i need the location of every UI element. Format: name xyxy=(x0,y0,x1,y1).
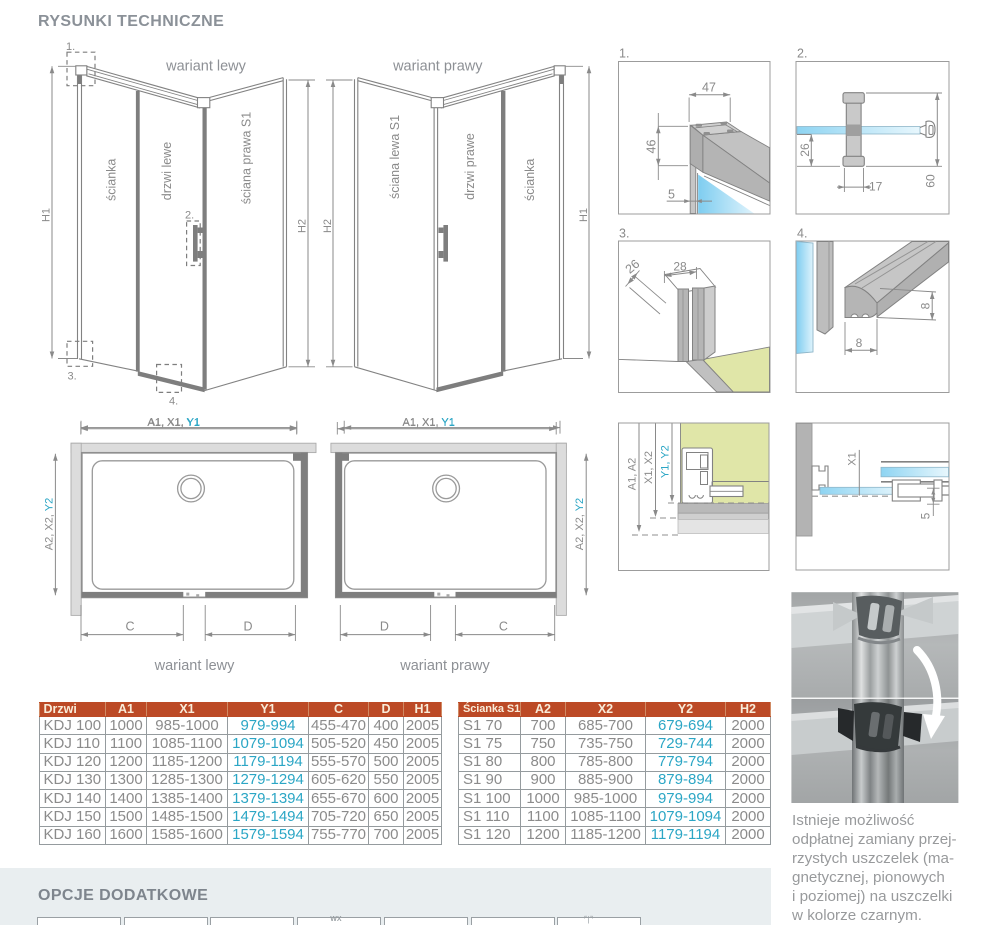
svg-text:2.: 2. xyxy=(797,47,807,61)
svg-text:A2, X2, Y2: A2, X2, Y2 xyxy=(43,498,55,550)
svg-text:D: D xyxy=(243,620,252,634)
svg-text:60: 60 xyxy=(924,174,938,188)
svg-text:ściana prawa S1: ściana prawa S1 xyxy=(239,112,253,204)
svg-text:drzwi lewe: drzwi lewe xyxy=(160,142,174,200)
svg-text:3.: 3. xyxy=(68,371,77,383)
svg-text:wariant lewy: wariant lewy xyxy=(165,59,247,75)
svg-text:D: D xyxy=(380,620,389,634)
svg-text:A1, X1, Y1: A1, X1, Y1 xyxy=(147,417,199,429)
svg-text:26: 26 xyxy=(798,143,812,157)
svg-text:A2, X2, Y2: A2, X2, Y2 xyxy=(574,498,586,550)
svg-text:wariant lewy: wariant lewy xyxy=(154,658,236,674)
svg-text:A1, A2: A1, A2 xyxy=(626,458,638,490)
svg-text:H2: H2 xyxy=(296,219,308,233)
svg-text:ściana lewa S1: ściana lewa S1 xyxy=(388,115,402,199)
svg-text:wariant prawy: wariant prawy xyxy=(399,658,490,674)
svg-text:H1: H1 xyxy=(40,208,52,222)
svg-text:1.: 1. xyxy=(66,41,75,53)
svg-text:H2: H2 xyxy=(322,219,334,233)
svg-text:46: 46 xyxy=(644,140,658,154)
svg-text:4.: 4. xyxy=(797,227,807,241)
svg-text:3.: 3. xyxy=(619,227,629,241)
svg-text:8: 8 xyxy=(919,302,933,309)
svg-text:1.: 1. xyxy=(619,47,629,61)
svg-text:28: 28 xyxy=(673,260,687,274)
svg-text:47: 47 xyxy=(702,81,716,95)
svg-text:5: 5 xyxy=(919,512,933,519)
svg-text:Y1, Y2: Y1, Y2 xyxy=(660,445,672,478)
svg-text:H1: H1 xyxy=(578,208,590,222)
svg-text:drzwi prawe: drzwi prawe xyxy=(463,133,477,200)
svg-text:A1, X1, Y1: A1, X1, Y1 xyxy=(402,417,454,429)
svg-text:wariant prawy: wariant prawy xyxy=(392,59,483,75)
svg-text:17: 17 xyxy=(869,180,883,194)
svg-text:8: 8 xyxy=(856,336,863,350)
svg-text:4.: 4. xyxy=(169,396,178,408)
svg-text:C: C xyxy=(125,620,134,634)
svg-text:5: 5 xyxy=(668,188,675,202)
svg-text:ścianka: ścianka xyxy=(105,159,119,201)
svg-text:2.: 2. xyxy=(185,210,194,222)
svg-text:ścianka: ścianka xyxy=(523,159,537,201)
svg-text:C: C xyxy=(499,620,508,634)
svg-text:X1, X2: X1, X2 xyxy=(643,451,655,484)
svg-text:X1: X1 xyxy=(846,452,858,465)
